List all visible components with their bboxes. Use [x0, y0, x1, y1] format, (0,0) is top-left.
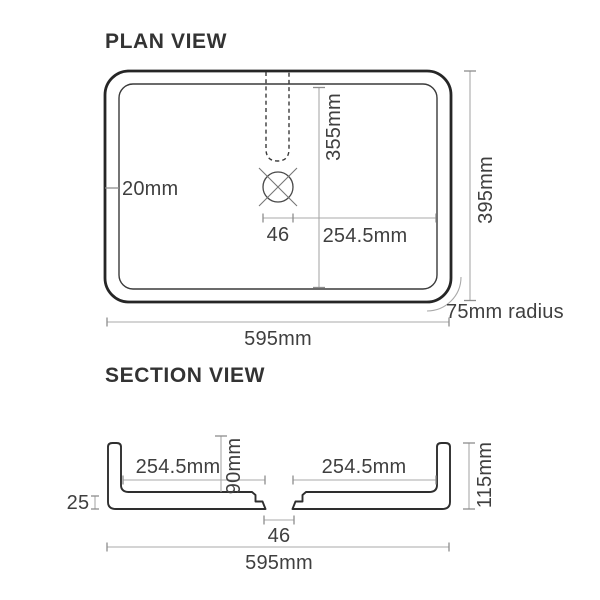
dim-label-46-section: 46	[268, 525, 291, 547]
plan-view-title: PLAN VIEW	[105, 30, 227, 53]
technical-drawing: PLAN VIEW 355mm 20mm 46 254.5mm 395mm 75…	[0, 0, 600, 600]
tap-hole-dashed-outline	[266, 72, 289, 161]
dim-label-595-section: 595mm	[245, 552, 313, 574]
dim-label-90: 90mm	[223, 438, 245, 494]
dim-label-254: 254.5mm	[323, 225, 408, 247]
dim-label-46: 46	[267, 224, 290, 246]
dim-label-25: 25	[67, 492, 90, 514]
dim-label-595-plan: 595mm	[244, 328, 312, 350]
section-view-title: SECTION VIEW	[105, 364, 265, 387]
dim-label-395: 395mm	[475, 156, 497, 224]
dim-label-115: 115mm	[474, 442, 496, 508]
dim-label-254-right: 254.5mm	[322, 456, 407, 478]
dim-label-radius: 75mm radius	[446, 301, 564, 323]
dim-label-20: 20mm	[122, 178, 178, 200]
dim-label-254-left: 254.5mm	[136, 456, 221, 478]
dim-label-355: 355mm	[323, 93, 345, 161]
drawing-canvas: PLAN VIEW 355mm 20mm 46 254.5mm 395mm 75…	[0, 0, 600, 600]
